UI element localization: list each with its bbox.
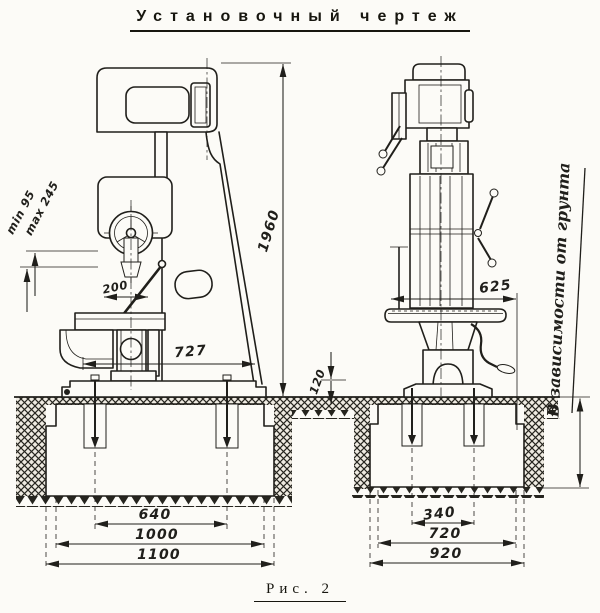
dim-label-1960: 1960 bbox=[255, 208, 283, 255]
figure-caption: Рис. 2 bbox=[0, 580, 600, 602]
crank-handle bbox=[471, 324, 516, 375]
table-side bbox=[385, 309, 506, 322]
column-handhole bbox=[174, 269, 214, 300]
dim-side-foundation: 340 720 920 bbox=[370, 448, 524, 568]
dim-spindle-travel: min 95 max 245 bbox=[3, 179, 98, 312]
foundation-block-front bbox=[46, 404, 274, 496]
dim-label-625: 625 bbox=[478, 277, 513, 297]
figure-caption-text: Рис. 2 bbox=[254, 581, 346, 602]
page-title: Установочный чертеж bbox=[0, 8, 600, 32]
front-view bbox=[60, 68, 266, 448]
spindle-slide bbox=[155, 132, 167, 178]
dim-label-727: 727 bbox=[174, 343, 208, 362]
worktable bbox=[60, 313, 165, 381]
dim-label-920: 920 bbox=[430, 546, 463, 562]
pedestal bbox=[423, 350, 473, 388]
base-bolt bbox=[64, 389, 70, 395]
installation-drawing: 1960 min 95 max 245 200 727 120 bbox=[0, 0, 600, 613]
foundation-block-side bbox=[370, 404, 524, 487]
dim-lever-radius: 200 bbox=[101, 278, 148, 297]
head-housing-side bbox=[405, 80, 469, 128]
dim-label-1000: 1000 bbox=[135, 527, 179, 543]
page-title-text: Установочный чертеж bbox=[130, 8, 470, 32]
dim-label-640: 640 bbox=[139, 507, 172, 523]
dim-label-340: 340 bbox=[422, 504, 456, 523]
dim-label-1100: 1100 bbox=[137, 547, 181, 563]
side-view bbox=[377, 64, 516, 445]
column-side bbox=[410, 174, 473, 308]
machine-base-side bbox=[404, 384, 492, 397]
control-levers-right bbox=[475, 189, 499, 267]
dim-label-120: 120 bbox=[306, 367, 328, 396]
head-window bbox=[126, 87, 189, 123]
machine-base-front bbox=[62, 381, 266, 397]
dim-label-200: 200 bbox=[101, 278, 129, 297]
dim-label-720: 720 bbox=[429, 526, 462, 542]
dim-front-foundation: 640 1000 1100 bbox=[46, 452, 274, 569]
head-cap bbox=[413, 64, 465, 80]
ground-and-foundations bbox=[14, 397, 590, 507]
dim-label-depth-note: В зависимости от грунта bbox=[543, 162, 573, 418]
dim-foundation-depth: В зависимости от грунта bbox=[540, 162, 589, 488]
